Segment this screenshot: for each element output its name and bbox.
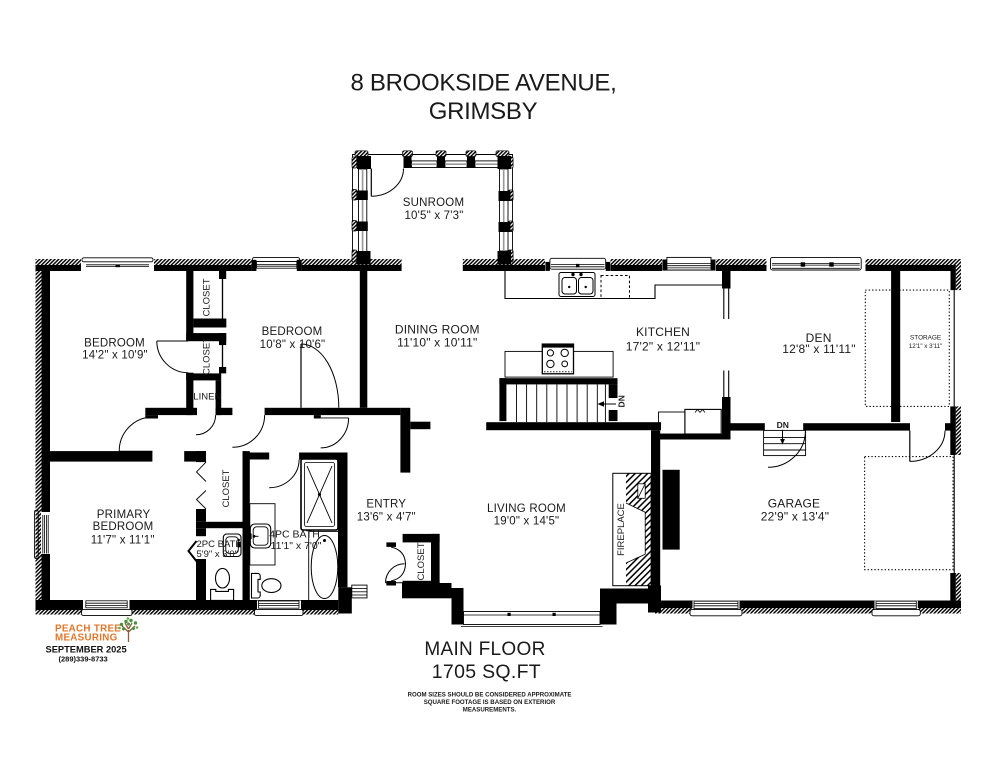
svg-text:22'9" x 13'4": 22'9" x 13'4" [761, 510, 829, 524]
svg-text:GARAGE: GARAGE [768, 497, 821, 511]
svg-text:PRIMARY: PRIMARY [97, 509, 151, 521]
svg-text:17'2" x 12'11": 17'2" x 12'11" [626, 340, 700, 354]
svg-text:BEDROOM: BEDROOM [262, 326, 323, 338]
svg-text:14'2" x 10'9": 14'2" x 10'9" [82, 350, 148, 362]
svg-text:FIREPLACE: FIREPLACE [616, 503, 627, 556]
svg-text:(289)339-8733: (289)339-8733 [59, 654, 108, 663]
svg-text:MEASURING: MEASURING [55, 633, 118, 644]
svg-text:CLOSET: CLOSET [201, 337, 212, 375]
svg-text:1705 SQ.FT: 1705 SQ.FT [432, 661, 541, 683]
svg-text:11'7" x 11'1": 11'7" x 11'1" [91, 535, 155, 547]
svg-text:STORAGE: STORAGE [910, 334, 941, 341]
svg-text:12'8" x 11'11": 12'8" x 11'11" [782, 342, 856, 356]
svg-text:11'1" x 7'0": 11'1" x 7'0" [271, 540, 322, 552]
svg-text:MEASUREMENTS.: MEASUREMENTS. [463, 707, 517, 714]
svg-text:DN: DN [777, 420, 789, 430]
svg-text:13'6" x 4'7": 13'6" x 4'7" [357, 512, 416, 524]
svg-text:19'0" x 14'5": 19'0" x 14'5" [494, 516, 560, 528]
svg-text:LIVING ROOM: LIVING ROOM [487, 503, 566, 515]
svg-text:BEDROOM: BEDROOM [93, 521, 154, 533]
svg-text:SQUARE FOOTAGE IS BASED ON EXT: SQUARE FOOTAGE IS BASED ON EXTERIOR [424, 699, 556, 706]
svg-text:MAIN FLOOR: MAIN FLOOR [424, 639, 545, 660]
svg-text:2PC BATH: 2PC BATH [197, 539, 243, 550]
svg-text:GRIMSBY: GRIMSBY [429, 98, 538, 125]
svg-text:5'9" x 3'0": 5'9" x 3'0" [197, 549, 239, 560]
svg-text:ENTRY: ENTRY [366, 499, 406, 511]
svg-text:CLOSET: CLOSET [221, 469, 232, 507]
svg-text:SUNROOM: SUNROOM [403, 197, 464, 209]
svg-text:12'1" x 3'11": 12'1" x 3'11" [909, 343, 942, 350]
svg-text:10'8" x 10'6": 10'8" x 10'6" [260, 339, 326, 351]
svg-text:11'10" x 10'11": 11'10" x 10'11" [397, 336, 477, 350]
svg-text:KITCHEN: KITCHEN [636, 325, 690, 339]
svg-text:CLOSET: CLOSET [416, 542, 427, 580]
svg-text:SEPTEMBER 2025: SEPTEMBER 2025 [46, 645, 127, 655]
svg-text:4PC BATH: 4PC BATH [269, 529, 320, 541]
svg-text:BEDROOM: BEDROOM [84, 338, 145, 350]
svg-text:8 BROOKSIDE AVENUE,: 8 BROOKSIDE AVENUE, [351, 70, 617, 97]
svg-text:DINING ROOM: DINING ROOM [395, 323, 480, 337]
svg-text:LINEN: LINEN [193, 391, 221, 402]
svg-text:DN: DN [617, 395, 627, 407]
svg-text:CLOSET: CLOSET [201, 278, 212, 316]
svg-text:10'5" x 7'3": 10'5" x 7'3" [404, 210, 463, 222]
svg-text:ROOM SIZES SHOULD BE CONSIDERE: ROOM SIZES SHOULD BE CONSIDERED APPROXIM… [408, 691, 572, 698]
